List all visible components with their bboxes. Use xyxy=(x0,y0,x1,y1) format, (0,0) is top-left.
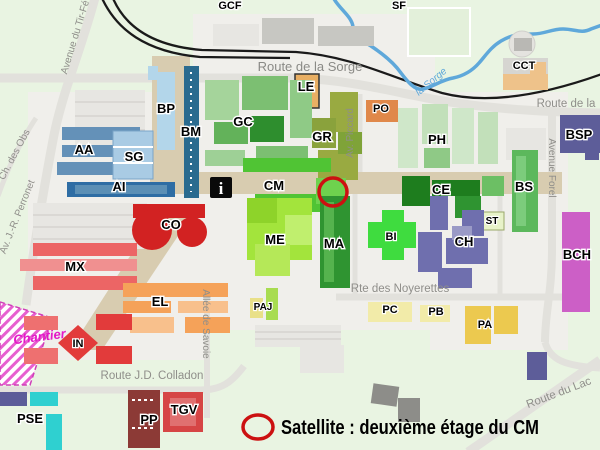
building-label-tgv: TGV xyxy=(171,402,198,417)
building-in xyxy=(24,316,58,330)
road-label-savoie: Allée de Savoie xyxy=(200,289,211,359)
building-label-gr: GR xyxy=(312,129,332,144)
building-mx xyxy=(33,243,137,256)
building-pse xyxy=(46,414,62,450)
building-label-cct: CCT xyxy=(513,60,536,72)
building-ch xyxy=(418,232,442,272)
building-ch xyxy=(430,196,448,230)
sports-field xyxy=(408,8,470,56)
building-label-pa: PA xyxy=(478,319,493,331)
building-in xyxy=(24,348,58,364)
building-me xyxy=(255,244,290,276)
building-label-pse: PSE xyxy=(17,411,43,426)
building-ce xyxy=(402,176,430,206)
building-ph xyxy=(452,108,474,164)
building-label-ma: MA xyxy=(324,236,345,251)
building-label-bi: BI xyxy=(386,231,397,243)
road-label-route-de-la: Route de la xyxy=(537,98,596,110)
information-icon: i xyxy=(210,177,232,198)
map-svg: la Sorge Chantier xyxy=(0,0,600,450)
road-label-noyerettes: Rte des Noyerettes xyxy=(351,283,450,295)
parking-lot xyxy=(33,203,147,249)
legend: Satellite : deuxième étage du CM xyxy=(243,415,539,439)
building-label-pp: PP xyxy=(140,412,158,427)
building-bp xyxy=(148,66,158,80)
building-cm xyxy=(243,158,331,172)
building-label-bsp: BSP xyxy=(566,127,593,142)
building-label-gc: GC xyxy=(233,114,253,129)
building-label-bm: BM xyxy=(181,124,201,139)
building-me xyxy=(247,198,277,223)
gcf-building-shape xyxy=(262,18,314,44)
building-label-bs: BS xyxy=(515,179,533,194)
cct-roof xyxy=(514,38,532,51)
building-label-bp: BP xyxy=(157,101,175,116)
building-gc xyxy=(250,116,284,142)
building-label-el: EL xyxy=(152,294,169,309)
building-pse xyxy=(30,392,58,406)
building-gc xyxy=(205,150,245,166)
parking-lot xyxy=(255,325,341,347)
building-mx xyxy=(33,276,137,290)
building-label-ph: PH xyxy=(428,132,446,147)
gcf-building-shape xyxy=(318,26,374,46)
building-label-me: ME xyxy=(265,232,285,247)
building-label-paj: PAJ xyxy=(254,302,273,313)
building-bsp xyxy=(585,148,599,160)
construction-shape xyxy=(371,383,400,406)
building-label-gcf: GCF xyxy=(218,0,242,12)
building-label-bch: BCH xyxy=(563,247,591,262)
building-ph xyxy=(478,112,498,164)
building-cct xyxy=(503,74,548,90)
building-label-sf: SF xyxy=(392,0,406,12)
building-el xyxy=(130,317,174,333)
building-label-ce: CE xyxy=(432,182,450,197)
legend-text: Satellite : deuxième étage du CM xyxy=(281,417,539,439)
campus-map: la Sorge Chantier xyxy=(0,0,600,450)
building-ph xyxy=(424,148,450,168)
building-in xyxy=(96,314,132,330)
building-label-mx: MX xyxy=(65,259,85,274)
building-el xyxy=(123,283,228,297)
information-icon-glyph: i xyxy=(219,179,224,198)
building-pse xyxy=(0,392,27,406)
road-label-piccard: Av. Piccard xyxy=(345,108,356,158)
building-label-sg: SG xyxy=(125,149,144,164)
building-label-cm: CM xyxy=(264,178,284,193)
building-label-st: ST xyxy=(486,216,499,227)
building-label-co: CO xyxy=(161,217,181,232)
building-label-po: PO xyxy=(373,103,389,115)
building-label-aa: AA xyxy=(75,142,94,157)
building-label-le: LE xyxy=(298,79,315,94)
building-label-ai: AI xyxy=(113,179,126,194)
building-pa xyxy=(494,306,518,334)
building-label-in: IN xyxy=(73,338,84,350)
building-in xyxy=(96,346,132,364)
small-building-shape xyxy=(527,352,547,380)
building-label-ch: CH xyxy=(455,234,474,249)
building-gc xyxy=(242,76,288,110)
building-label-pb: PB xyxy=(428,306,443,318)
building-me xyxy=(285,215,312,245)
road-label-sorge: Route de la Sorge xyxy=(258,59,363,74)
road-label-forel: Avenue Forel xyxy=(546,138,557,197)
building-label-pc: PC xyxy=(382,304,397,316)
building-co xyxy=(177,217,207,247)
building-ph xyxy=(398,108,418,168)
building-bch xyxy=(562,212,590,312)
parking-lot xyxy=(300,345,344,373)
parking-lot xyxy=(213,24,259,46)
road-label-colladon: Route J.D. Colladon xyxy=(101,370,204,382)
building-ce xyxy=(482,176,504,196)
